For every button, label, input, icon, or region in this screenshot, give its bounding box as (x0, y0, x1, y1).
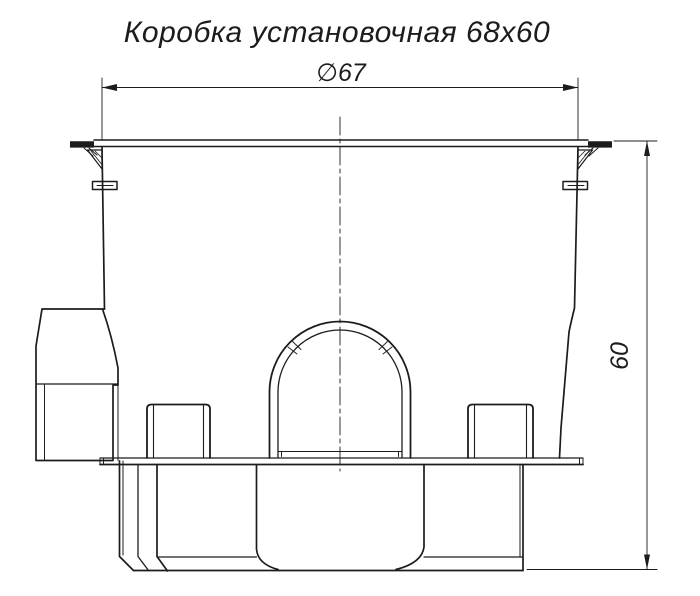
arrow-right (563, 84, 578, 91)
flange-left-cap (70, 141, 94, 147)
flange-right-cap (588, 141, 612, 147)
bowl-left-wall (257, 465, 279, 570)
body-shelf (100, 458, 583, 465)
dimension-height-label: 60 (606, 342, 634, 370)
lower-body (120, 461, 524, 571)
lower-left-side (157, 465, 168, 571)
lower-left-rib (138, 465, 149, 571)
lug-right-outline (468, 405, 533, 459)
bowl-right-wall (396, 465, 424, 570)
mounting-flange (70, 140, 612, 156)
lug-left-outline (147, 405, 210, 459)
arrow-bottom (644, 555, 650, 570)
gusset-right (578, 150, 593, 169)
shelf-right-cap (580, 458, 584, 465)
arrow-left (102, 84, 117, 91)
cable-boss-left (36, 309, 118, 461)
lug-left-inner (154, 405, 204, 458)
technical-drawing: Коробка установочная 68х60 ∅67 60 (0, 0, 700, 596)
cable-boss-outline (36, 309, 118, 461)
drawing-sheet: Коробка установочная 68х60 ∅67 60 (0, 0, 700, 596)
wall-left (102, 147, 105, 309)
dimension-diameter-label: ∅67 (316, 59, 367, 87)
wall-right (560, 147, 579, 458)
installation-box (36, 140, 612, 571)
drawing-title: Коробка установочная 68х60 (124, 16, 550, 49)
arrow-top (644, 141, 650, 156)
lower-left-outer (120, 461, 134, 571)
lug-right-inner (475, 405, 527, 458)
dimension-height: 60 (527, 141, 657, 570)
